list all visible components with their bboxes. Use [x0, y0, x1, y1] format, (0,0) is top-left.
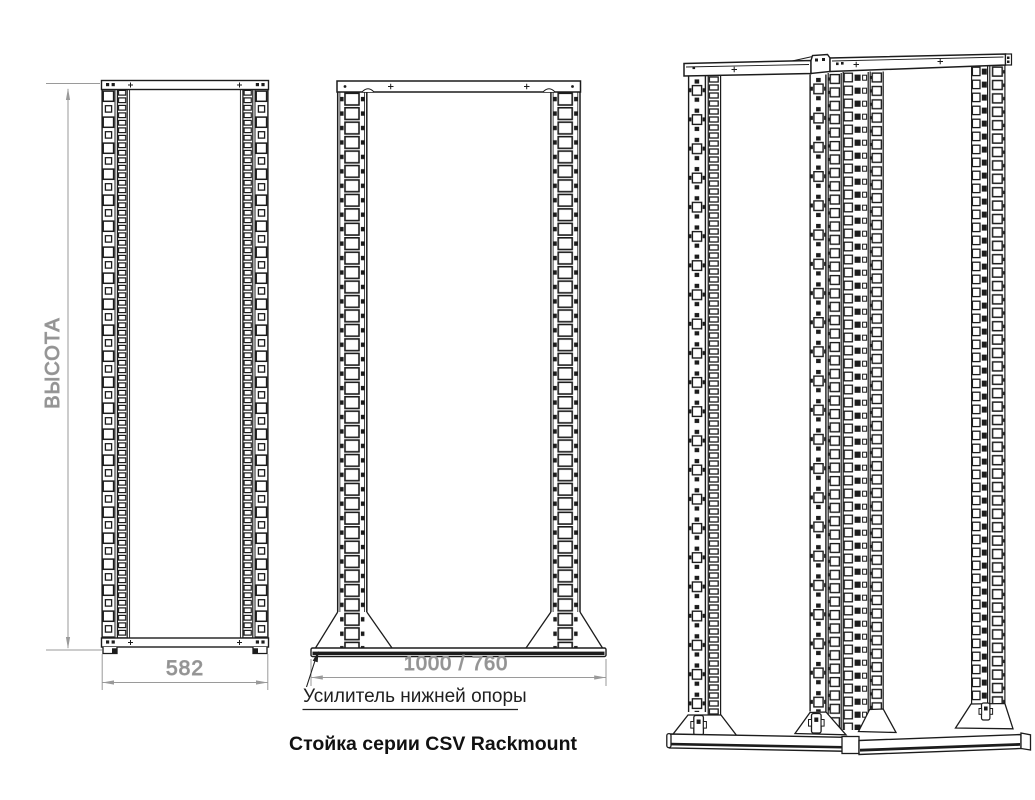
width-dimension: 1000 / 760	[311, 653, 606, 686]
iso-posts	[688, 66, 1005, 735]
height-dimension: ВЫСОТА	[42, 84, 102, 651]
depth-dimension-label: 582	[166, 657, 204, 680]
side-left-outer-rail	[102, 90, 116, 639]
iso-front-left-side-rail	[708, 76, 721, 734]
iso-front-right-side-rail	[828, 73, 842, 731]
iso-front-right-rail	[810, 75, 827, 712]
technical-drawing-page: ВЫСОТА 582 1000 / 760 Усилитель нижне	[0, 0, 1035, 800]
dim-arrow-up	[66, 88, 70, 100]
iso-rear-right-outer-rail	[989, 66, 1005, 727]
iso-rear-left-rail	[870, 72, 884, 730]
side-view-bottom-bar	[102, 638, 269, 647]
dim-arrow-down	[66, 637, 70, 649]
iso-rear-right-rail	[971, 66, 988, 727]
width-dimension-label: 1000 / 760	[404, 653, 509, 675]
dim-arrow-right	[594, 675, 606, 679]
side-view	[102, 81, 269, 654]
depth-dimension: 582	[102, 654, 268, 690]
side-right-inner-rail	[243, 90, 254, 639]
front-left-post-rail	[340, 92, 364, 648]
iso-view	[667, 54, 1031, 755]
side-view-top-bar	[102, 81, 269, 90]
front-view	[311, 81, 606, 657]
drawing-caption: Стойка серии CSV Rackmount	[289, 733, 577, 755]
iso-corner-post-rails	[843, 72, 869, 730]
side-left-inner-rail	[117, 90, 128, 639]
height-dimension-label: ВЫСОТА	[42, 317, 64, 409]
side-view-feet	[103, 647, 267, 654]
side-right-outer-rail	[255, 90, 269, 639]
dim-arrow-left	[311, 675, 323, 679]
iso-front-left-rail	[688, 76, 706, 712]
rack-drawing-canvas: ВЫСОТА 582 1000 / 760 Усилитель нижне	[0, 0, 1035, 800]
iso-base-bars	[667, 733, 1031, 755]
dim-arrow-left	[102, 680, 114, 684]
base-callout-label: Усилитель нижней опоры	[303, 686, 527, 707]
front-right-post-rail	[553, 92, 577, 648]
dim-arrow-right	[256, 680, 268, 684]
